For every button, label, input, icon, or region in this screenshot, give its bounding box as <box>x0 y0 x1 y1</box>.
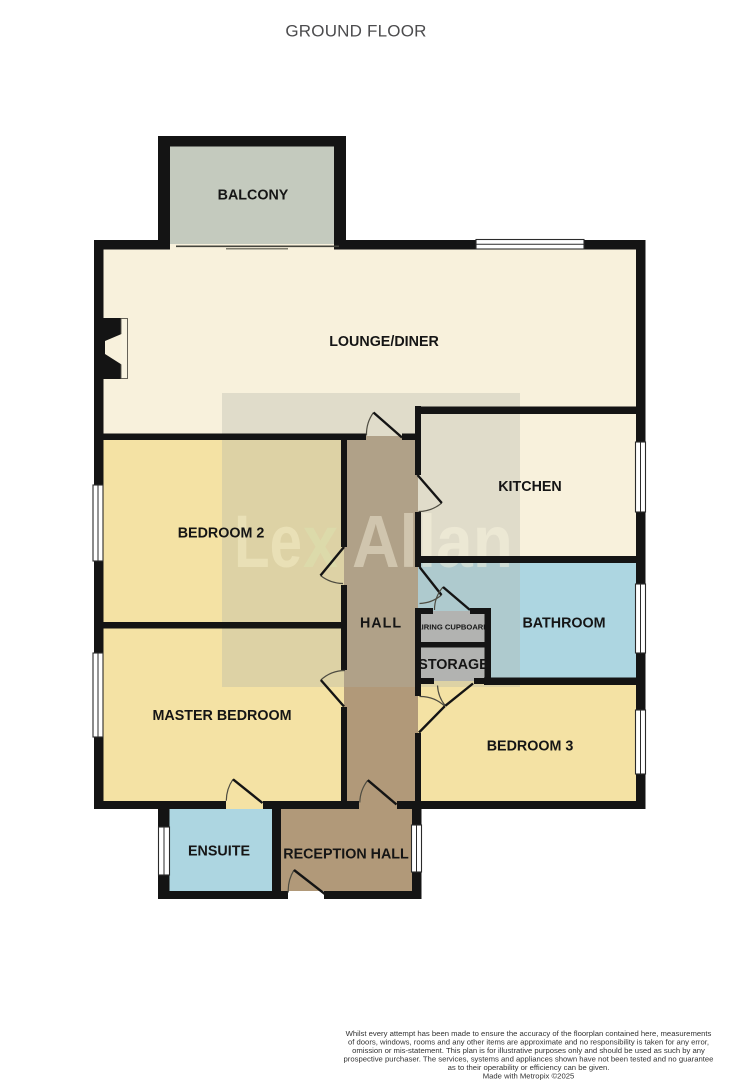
svg-text:Made with Metropix ©2025: Made with Metropix ©2025 <box>483 1072 575 1080</box>
svg-text:BEDROOM 3: BEDROOM 3 <box>487 738 574 754</box>
svg-text:BEDROOM 2: BEDROOM 2 <box>178 525 265 541</box>
svg-text:ENSUITE: ENSUITE <box>188 844 250 860</box>
svg-text:x: x <box>303 500 338 583</box>
svg-text:RECEPTION HALL: RECEPTION HALL <box>283 846 409 862</box>
svg-text:MASTER BEDROOM: MASTER BEDROOM <box>153 708 292 724</box>
svg-text:LOUNGE/DINER: LOUNGE/DINER <box>329 334 439 350</box>
svg-text:Allan: Allan <box>352 500 513 583</box>
svg-text:HALL: HALL <box>360 616 402 632</box>
svg-text:Le: Le <box>234 500 302 583</box>
svg-text:AIRING CUPBOARD: AIRING CUPBOARD <box>416 623 489 632</box>
svg-text:KITCHEN: KITCHEN <box>498 479 562 495</box>
svg-text:GROUND FLOOR: GROUND FLOOR <box>285 22 426 41</box>
svg-text:STORAGE: STORAGE <box>418 657 488 673</box>
svg-text:BALCONY: BALCONY <box>218 187 289 203</box>
svg-text:BATHROOM: BATHROOM <box>522 616 605 632</box>
